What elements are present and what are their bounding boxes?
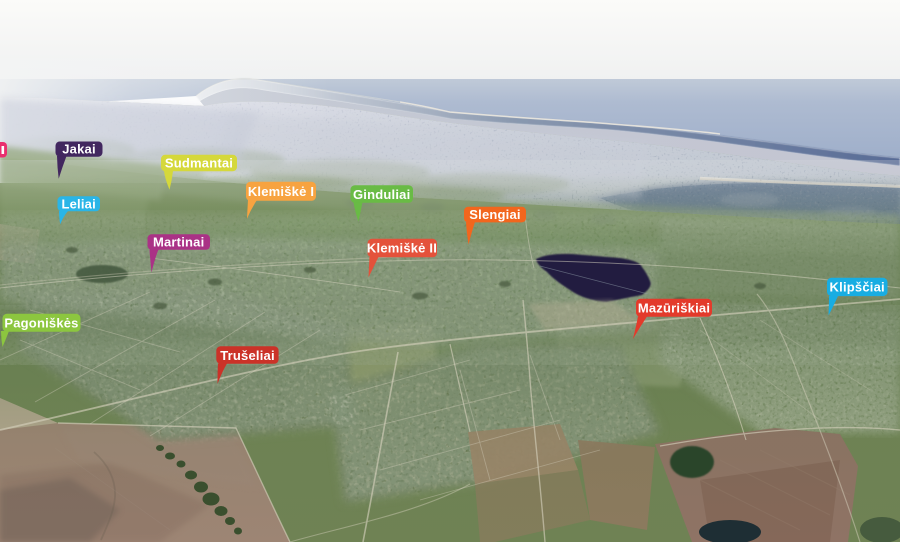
svg-text:Klipščiai: Klipščiai: [830, 280, 885, 295]
svg-text:Trušeliai: Trušeliai: [220, 348, 275, 363]
svg-text:Klemiškė I: Klemiškė I: [248, 184, 314, 199]
svg-text:Ginduliai: Ginduliai: [353, 187, 410, 202]
svg-text:Jakai: Jakai: [62, 142, 96, 157]
svg-text:Leliai: Leliai: [61, 196, 95, 211]
svg-text:Slengiai: Slengiai: [469, 207, 520, 222]
svg-text:Martinai: Martinai: [153, 235, 204, 250]
svg-text:Sudmantai: Sudmantai: [165, 156, 233, 171]
svg-text:Pagoniškės: Pagoniškės: [4, 315, 78, 330]
svg-text:Klemiškė II: Klemiškė II: [367, 241, 437, 256]
svg-text:Mazūriškiai: Mazūriškiai: [638, 300, 710, 315]
